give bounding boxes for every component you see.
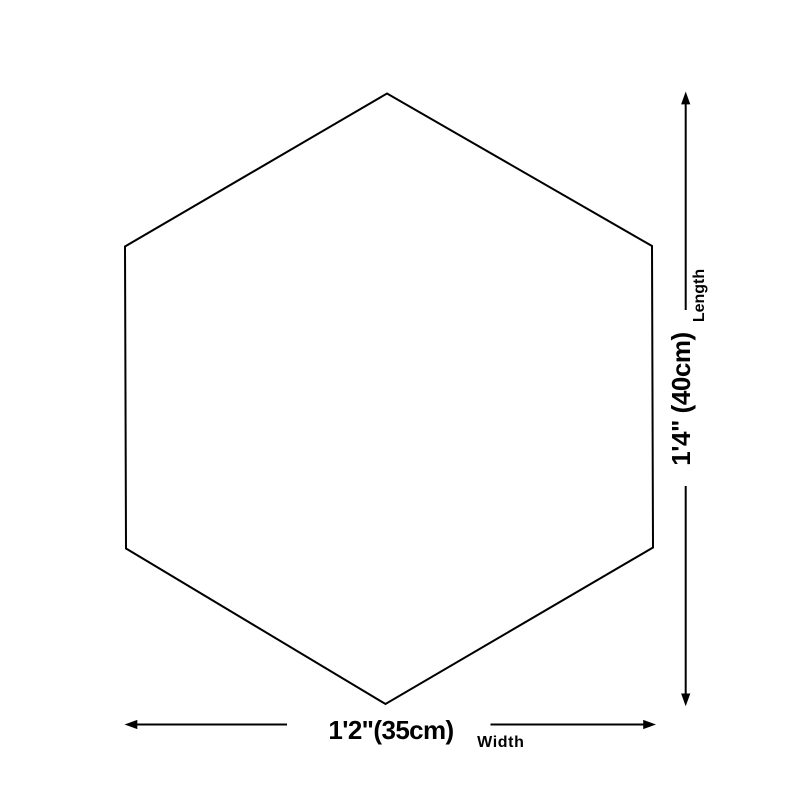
svg-text:Width: Width bbox=[477, 734, 524, 751]
svg-text:Length: Length bbox=[691, 269, 708, 322]
svg-text:1'4" (40cm): 1'4" (40cm) bbox=[666, 332, 696, 466]
svg-text:1'2"(35cm): 1'2"(35cm) bbox=[328, 715, 453, 745]
